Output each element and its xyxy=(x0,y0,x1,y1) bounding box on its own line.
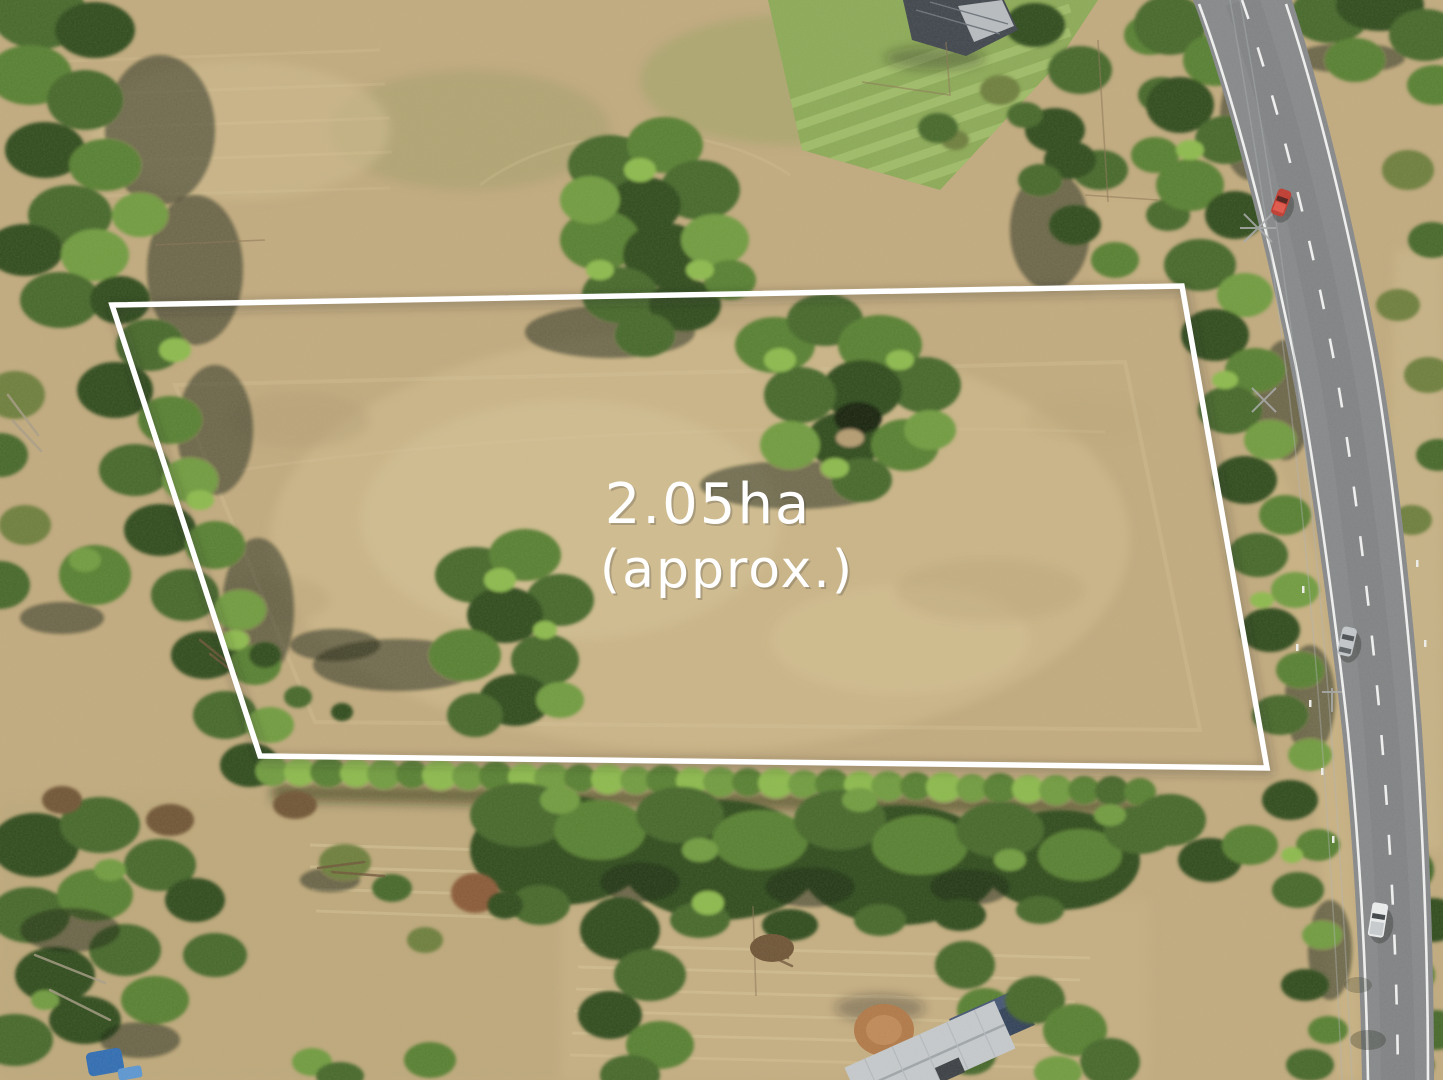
area-approx-text: (approx.) xyxy=(600,540,854,600)
aerial-photo: 2.05ha (approx.) 2.05ha (approx.) xyxy=(0,0,1443,1080)
area-value-text: 2.05ha xyxy=(605,472,812,537)
